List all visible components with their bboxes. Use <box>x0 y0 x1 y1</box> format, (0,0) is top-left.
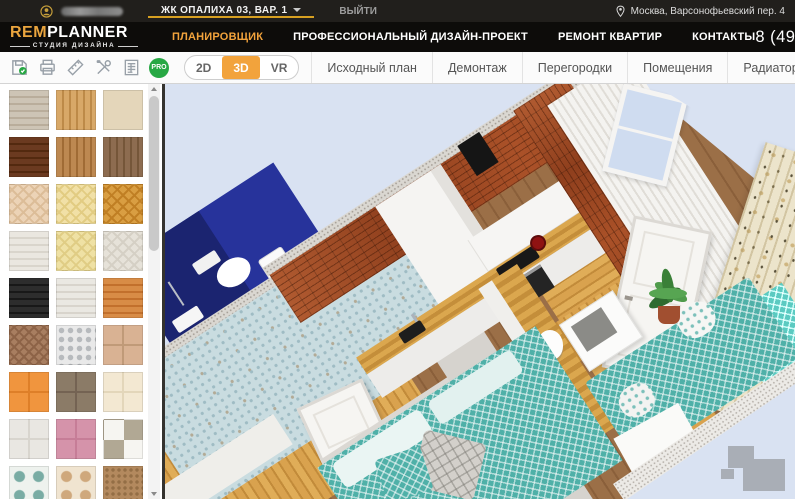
estimate-icon[interactable] <box>121 58 141 78</box>
tool-buttons: PRO <box>0 58 178 78</box>
material-swatch[interactable] <box>9 184 49 224</box>
material-swatch[interactable] <box>56 419 96 459</box>
material-swatch-grid <box>9 90 143 499</box>
plant-pot <box>658 306 680 324</box>
material-swatch[interactable] <box>103 231 143 271</box>
material-swatch[interactable] <box>103 184 143 224</box>
material-swatch[interactable] <box>56 372 96 412</box>
stage-tab[interactable]: Помещения <box>628 52 728 83</box>
material-swatch[interactable] <box>56 184 96 224</box>
measure-icon[interactable] <box>65 58 85 78</box>
print-icon[interactable] <box>37 58 57 78</box>
view-mode-button[interactable]: VR <box>260 56 299 79</box>
logo-text: REMPLANNER <box>10 25 138 41</box>
user-avatar-icon[interactable] <box>40 5 53 18</box>
view-mode-button[interactable]: 2D <box>185 56 222 79</box>
project-selector[interactable]: ЖК ОПАЛИХА 03, ВАР. 1 <box>148 5 314 18</box>
3d-viewport[interactable] <box>162 84 795 499</box>
window-mullion <box>618 125 673 141</box>
material-swatch[interactable] <box>103 466 143 499</box>
potted-plant <box>643 272 693 328</box>
minimap[interactable] <box>721 446 787 492</box>
remplanner-logo[interactable]: REMPLANNER СТУДИЯ ДИЗАЙНА <box>10 25 138 50</box>
top-bar: ЖК ОПАЛИХА 03, ВАР. 1 ВЫЙТИ Москва, Варс… <box>0 0 795 22</box>
pro-badge: PRO <box>149 58 169 78</box>
door-handle <box>624 296 633 302</box>
view-mode-button[interactable]: 3D <box>222 56 259 79</box>
phone-number: 8 (495) 798 66 31 <box>755 28 795 47</box>
tools-icon[interactable] <box>93 58 113 78</box>
stage-tab[interactable]: Перегородки <box>523 52 628 83</box>
office-address: Москва, Варсонофьевский пер. 4 <box>631 6 785 17</box>
scroll-down-icon[interactable] <box>148 488 160 499</box>
stage-tab[interactable]: Исходный план <box>312 52 433 83</box>
material-swatch[interactable] <box>9 90 49 130</box>
material-swatch[interactable] <box>103 137 143 177</box>
material-swatch[interactable] <box>9 419 49 459</box>
material-swatch[interactable] <box>56 325 96 365</box>
main-area <box>0 84 795 499</box>
material-swatch[interactable] <box>9 278 49 318</box>
remplanner-app: ЖК ОПАЛИХА 03, ВАР. 1 ВЫЙТИ Москва, Варс… <box>0 0 795 500</box>
nav-menu-item[interactable]: ПЛАНИРОВЩИК <box>172 31 263 43</box>
material-swatch[interactable] <box>103 419 143 459</box>
material-swatch[interactable] <box>9 325 49 365</box>
material-swatch[interactable] <box>9 466 49 499</box>
planner-toolbar: PRO 2D 3D VR Исходный план Демонтаж Пере… <box>0 52 795 84</box>
nav-menu: ПЛАНИРОВЩИК ПРОФЕССИОНАЛЬНЫЙ ДИЗАЙН-ПРОЕ… <box>172 31 755 43</box>
material-swatch[interactable] <box>56 466 96 499</box>
username-redacted <box>61 7 123 16</box>
scroll-up-icon[interactable] <box>148 84 160 95</box>
main-nav-bar: REMPLANNER СТУДИЯ ДИЗАЙНА ПЛАНИРОВЩИК ПР… <box>0 22 795 52</box>
logout-link[interactable]: ВЫЙТИ <box>327 6 389 17</box>
sidebar-scrollbar[interactable] <box>148 84 160 499</box>
material-swatch[interactable] <box>9 137 49 177</box>
material-swatch[interactable] <box>103 372 143 412</box>
stage-tab[interactable]: Радиаторы <box>728 52 795 83</box>
plan-stage-tabs: Исходный план Демонтаж Перегородки Помещ… <box>311 52 795 83</box>
nav-menu-item[interactable]: ПРОФЕССИОНАЛЬНЫЙ ДИЗАЙН-ПРОЕКТ <box>293 31 528 43</box>
logo-subtitle: СТУДИЯ ДИЗАЙНА <box>10 43 138 50</box>
scrollbar-thumb[interactable] <box>149 96 159 251</box>
plant-leaf <box>649 288 687 299</box>
view-mode-switcher: 2D 3D VR <box>184 55 299 80</box>
location-area: Москва, Варсонофьевский пер. 4 <box>615 0 795 22</box>
location-pin-icon <box>615 5 626 18</box>
material-swatch[interactable] <box>103 325 143 365</box>
nav-menu-item[interactable]: РЕМОНТ КВАРТИР <box>558 31 662 43</box>
chevron-down-icon <box>293 8 301 12</box>
material-swatch[interactable] <box>56 137 96 177</box>
save-icon[interactable] <box>9 58 29 78</box>
material-swatch[interactable] <box>9 372 49 412</box>
material-swatch[interactable] <box>56 231 96 271</box>
material-swatch[interactable] <box>9 231 49 271</box>
account-area: ЖК ОПАЛИХА 03, ВАР. 1 ВЫЙТИ <box>0 0 389 22</box>
material-swatch[interactable] <box>103 90 143 130</box>
material-swatch[interactable] <box>56 90 96 130</box>
coffee-table-top <box>571 307 618 352</box>
stage-tab[interactable]: Демонтаж <box>433 52 523 83</box>
material-swatch[interactable] <box>56 278 96 318</box>
material-swatch[interactable] <box>103 278 143 318</box>
materials-sidebar <box>0 84 162 499</box>
project-name: ЖК ОПАЛИХА 03, ВАР. 1 <box>161 5 287 16</box>
nav-menu-item[interactable]: КОНТАКТЫ <box>692 31 755 43</box>
